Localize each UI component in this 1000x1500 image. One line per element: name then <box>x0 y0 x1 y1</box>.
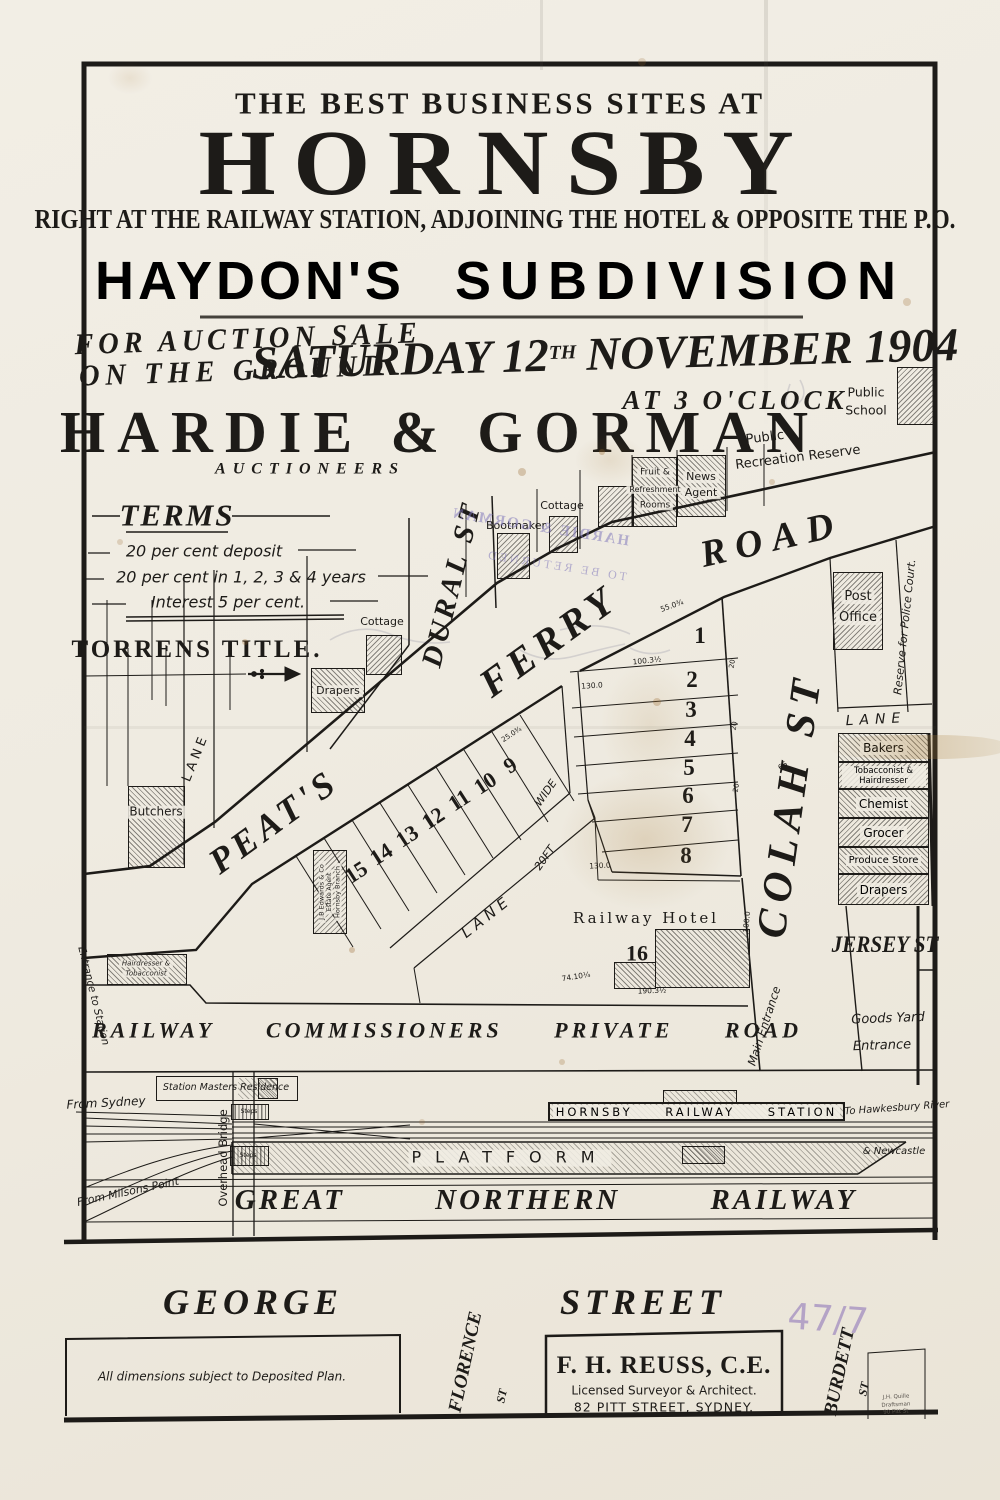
street-george-street: STREET <box>560 1284 726 1322</box>
fruit-rooms-label-1: Fruit & <box>637 468 673 477</box>
shop-tobacconist-hairdresser: Tobacconist & Hairdresser <box>838 762 929 789</box>
subdivision-poster: THE BEST BUSINESS SITES AT HORNSBY RIGHT… <box>0 0 1000 1500</box>
fruit-rooms-label-3: Rooms <box>637 501 673 510</box>
butchers-building <box>128 786 185 868</box>
surveyor-address: 82 PITT STREET, SYDNEY. <box>574 1400 754 1413</box>
newcastle-label: & Newcastle <box>863 1147 925 1158</box>
news-agent-label-1: News <box>683 471 719 483</box>
public-school-building <box>897 367 936 425</box>
tenure-note: TORRENS TITLE. <box>72 637 323 663</box>
public-school-label-1: Public <box>848 385 885 398</box>
platform-label: PLATFORM <box>408 1150 611 1167</box>
lot-2: 2 <box>686 668 698 692</box>
terms-heading: TERMS <box>119 500 234 533</box>
lot-7: 7 <box>681 813 693 837</box>
auction-date-day: SATURDAY 12 <box>251 330 550 390</box>
cottage-label-b: Cottage <box>540 500 584 512</box>
railway-hotel-label: Railway Hotel <box>573 911 719 927</box>
steps-label-platform: Steps <box>240 1153 257 1159</box>
shop-grocer: Grocer <box>838 818 929 847</box>
poster-title: HORNSBY <box>199 115 812 213</box>
shop-chemist-label: Chemist <box>856 797 911 811</box>
street-george: GEORGE <box>163 1284 343 1322</box>
railway-hotel-building <box>655 929 750 988</box>
hairdresser-tobacconist-label-1: Hairdresser & <box>119 960 173 967</box>
terms-line-1: 20 per cent deposit <box>126 544 282 561</box>
edwards-agency-label-3: Hornsby Branch <box>335 863 342 921</box>
shop-bakers: Bakers <box>838 733 929 762</box>
street-jersey: JERSEY ST <box>832 933 939 957</box>
lot-3: 3 <box>685 698 697 722</box>
goods-yard-label-2: Entrance <box>853 1038 912 1054</box>
lot-16: 16 <box>626 941 648 964</box>
station-masters-residence-label: Station Masters Residence <box>163 1083 289 1093</box>
steps-label-north: Steps <box>241 1109 258 1115</box>
public-school-label-2: School <box>845 403 887 416</box>
poster-subtitle: RIGHT AT THE RAILWAY STATION, ADJOINING … <box>35 205 956 233</box>
shop-produce-store: Produce Store <box>838 847 929 874</box>
lane-label-east: LANE <box>845 711 906 729</box>
station-bar: HORNSBY RAILWAY STATION <box>548 1102 845 1121</box>
dim-20-a: 20 <box>729 659 738 669</box>
street-florence-st: ST <box>494 1388 509 1404</box>
surveyor-name: F. H. REUSS, C.E. <box>557 1353 772 1379</box>
dim-colah-side: 100.0 <box>742 911 752 933</box>
butchers-label: Butchers <box>126 806 185 819</box>
news-agent-label-2: Agent <box>682 487 721 499</box>
surveyor-role: Licensed Surveyor & Architect. <box>571 1385 756 1398</box>
post-office-label-2: Office <box>836 611 880 625</box>
hairdresser-tobacconist-label-2: Tobacconist <box>122 970 169 977</box>
private-road-label: RAILWAY COMMISSIONERS PRIVATE ROAD <box>92 1018 802 1041</box>
goods-yard-label-1: Goods Yard <box>851 1011 925 1027</box>
dimensions-note: All dimensions subject to Deposited Plan… <box>98 1371 346 1384</box>
lot-4: 4 <box>684 727 696 751</box>
drapers-label-a: Drapers <box>313 685 363 697</box>
cottage-label-a: Cottage <box>360 616 404 628</box>
shop-drapers: Drapers <box>838 874 929 905</box>
lot-8: 8 <box>680 844 692 868</box>
overhead-bridge-label: Overhead Bridge <box>217 1109 229 1206</box>
great-northern-railway-label: GREAT NORTHERN RAILWAY <box>235 1185 857 1215</box>
terms-line-3: Interest 5 per cent. <box>151 595 305 612</box>
shop-bakers-label: Bakers <box>860 741 907 755</box>
shop-drapers-label: Drapers <box>857 883 911 897</box>
dim-lot8: 130.0 <box>589 862 611 871</box>
station-bar-label: HORNSBY RAILWAY STATION <box>553 1105 841 1119</box>
subdivision-heading: HAYDON'S SUBDIVISION <box>95 252 905 310</box>
edwards-agency-label-2: Estate Agent <box>327 870 333 915</box>
street-burdett-st: ST <box>856 1381 871 1397</box>
auction-date-ordinal: TH <box>549 341 577 364</box>
lot-6: 6 <box>682 784 694 808</box>
dim-hotel-frontage: 190.3½ <box>637 987 666 996</box>
cottage-building-a <box>366 635 402 675</box>
fruit-rooms-label-2: Refreshment <box>626 486 683 494</box>
dim-20-c: 20 <box>733 783 742 793</box>
shop-chemist: Chemist <box>838 789 929 818</box>
pencil-file-mark: 47/7 <box>786 1298 869 1341</box>
dim-20-b: 20 <box>731 721 740 731</box>
railway-hotel-annex <box>614 962 656 989</box>
auctioneer-role: AUCTIONEERS <box>215 462 405 479</box>
shop-grocer-label: Grocer <box>860 826 906 840</box>
subdivision-heading-right: SUBDIVISION <box>455 250 905 312</box>
terms-line-2: 20 per cent in 1, 2, 3 & 4 years <box>116 570 366 587</box>
subdivision-heading-left: HAYDON'S <box>95 250 405 312</box>
dim-lot2: 130.0 <box>581 681 603 690</box>
lot-1: 1 <box>694 624 706 648</box>
edwards-agency-label-1: J.B Edwards & Co <box>319 861 326 923</box>
post-office-label-1: Post <box>841 590 874 604</box>
shop-tobacconist-hairdresser-label: Tobacconist & Hairdresser <box>842 766 926 786</box>
platform-building <box>682 1146 725 1164</box>
lot-5: 5 <box>683 756 695 780</box>
shop-produce-store-label: Produce Store <box>846 855 922 866</box>
